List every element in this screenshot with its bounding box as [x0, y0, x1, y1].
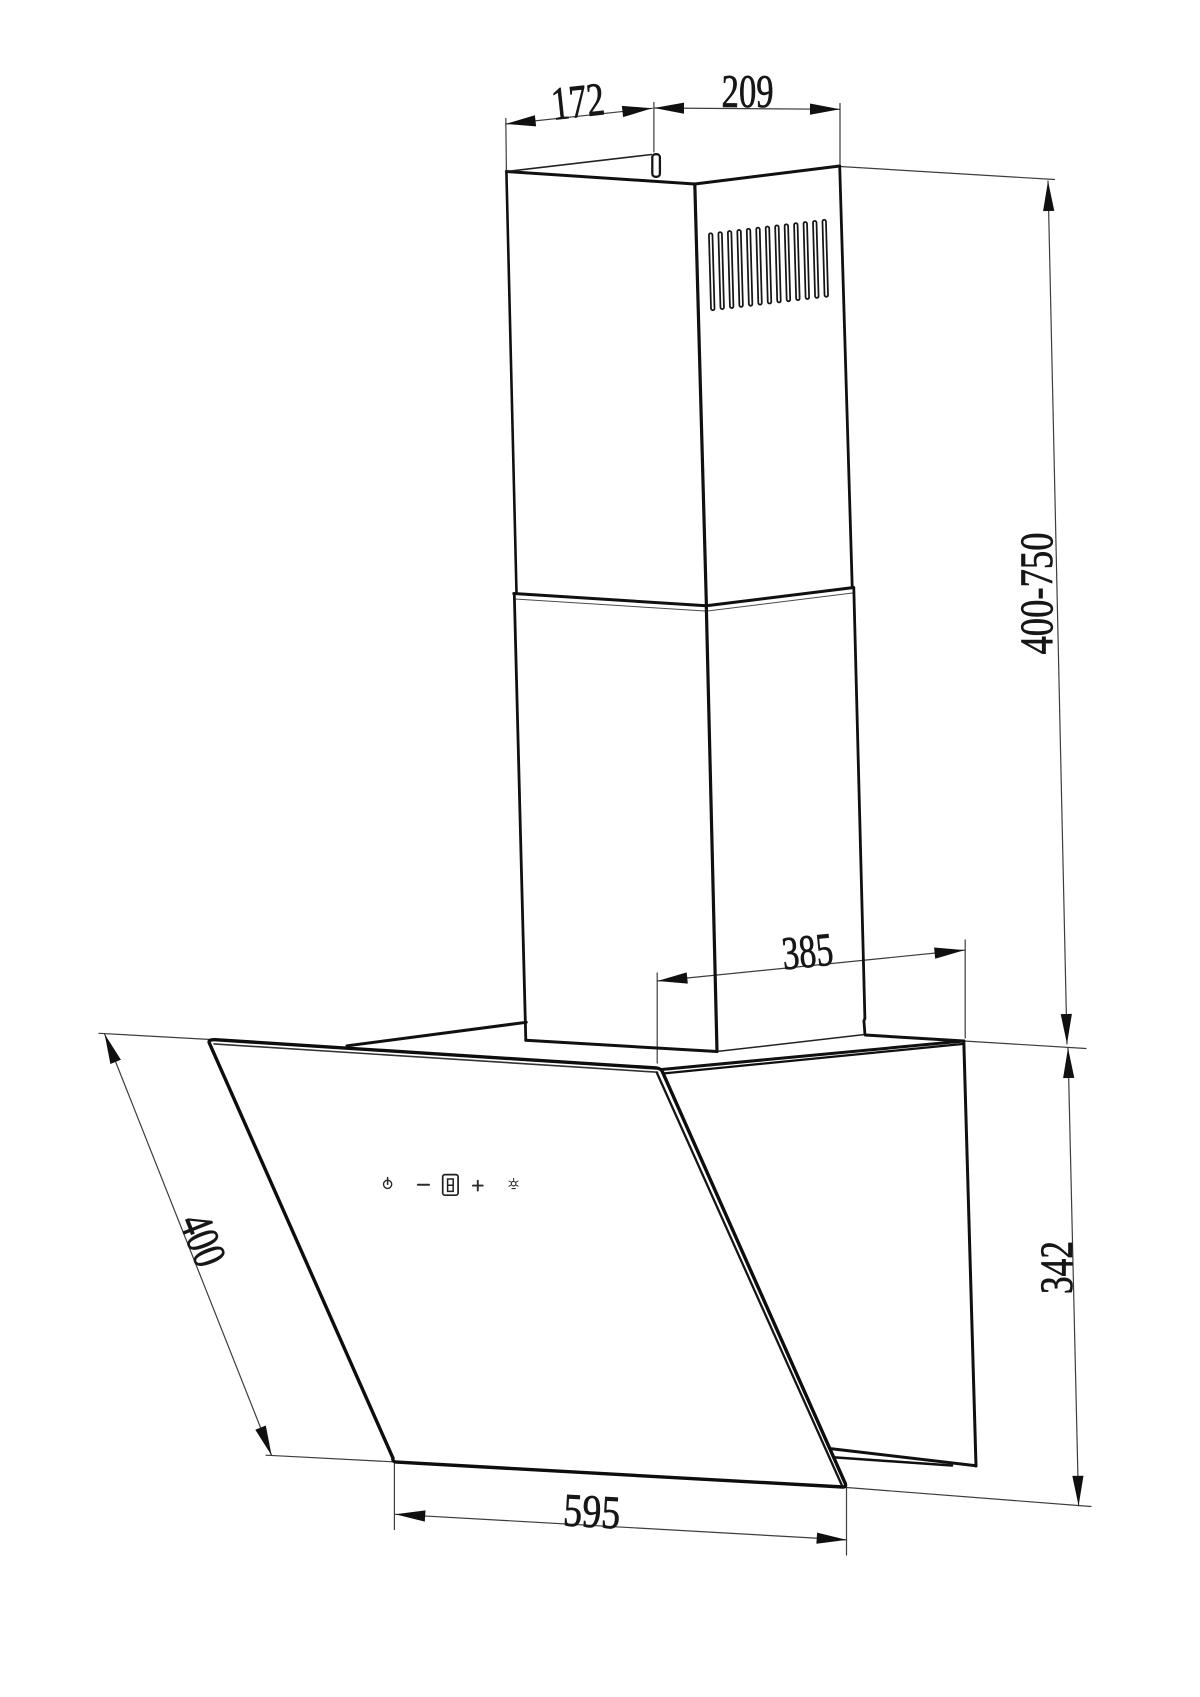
svg-text:209: 209	[721, 66, 773, 118]
svg-text:595: 595	[562, 1484, 622, 1539]
svg-text:172: 172	[549, 73, 607, 130]
svg-text:400-750: 400-750	[1011, 533, 1063, 655]
svg-text:385: 385	[780, 924, 836, 981]
svg-text:342: 342	[1031, 1241, 1083, 1294]
